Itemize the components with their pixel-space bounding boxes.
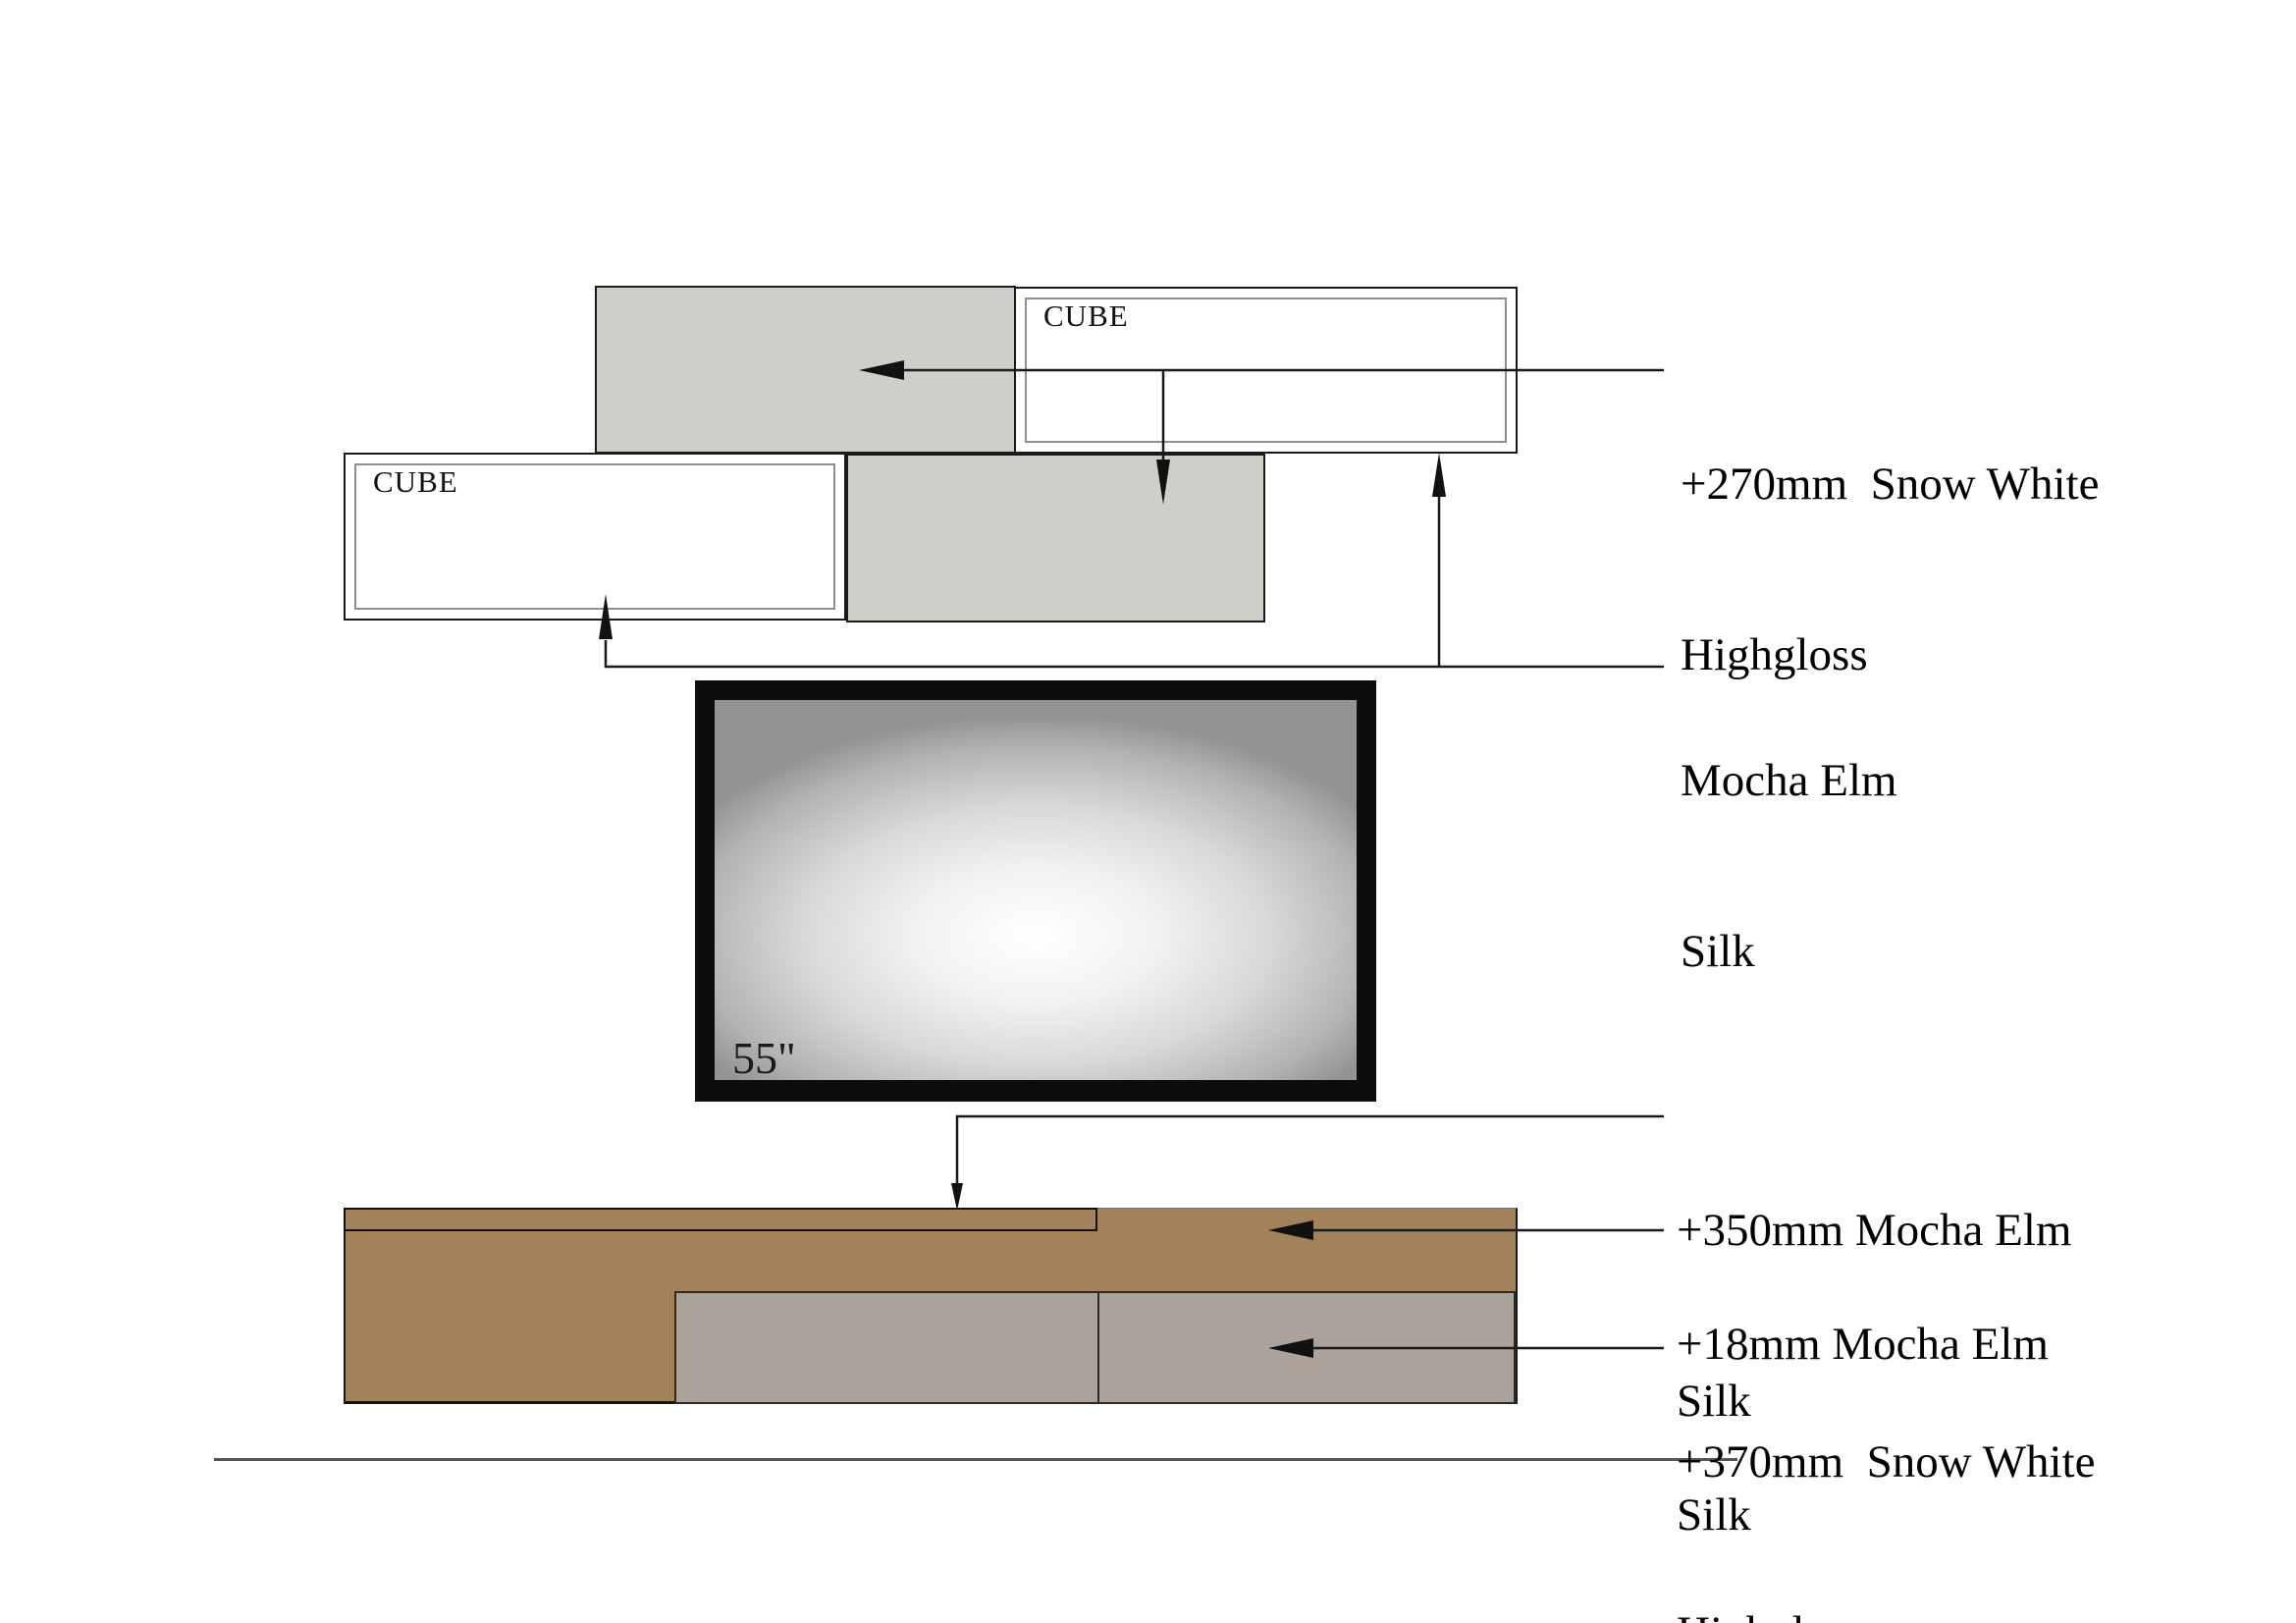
- annotation-mocha-elm: Mocha Elm Silk: [1681, 638, 1897, 1094]
- cube-left-label: CUBE: [373, 464, 458, 500]
- cabinet-top-panel: [344, 1208, 1097, 1231]
- cabinet-door-divider: [1097, 1293, 1099, 1402]
- floor-line: [214, 1458, 1737, 1461]
- cube-box-left: CUBE: [344, 453, 846, 621]
- wall-panel-gray-middle: [846, 454, 1265, 622]
- annotation-mocha-elm-line2: Silk: [1681, 923, 1897, 980]
- arrowhead-mocha-up-right-cube: [1432, 453, 1446, 497]
- elevation-drawing: CUBE CUBE 55": [0, 0, 2296, 1623]
- annotation-370mm: +370mm Snow White Highgloss: [1677, 1320, 2095, 1623]
- tv-size-label: 55": [732, 1032, 796, 1084]
- tv-55-inch: 55": [695, 680, 1376, 1102]
- leader-350mm-line: [957, 1116, 1664, 1186]
- arrowhead-350mm-down: [951, 1183, 963, 1211]
- cube-right-label: CUBE: [1043, 298, 1129, 334]
- annotation-mocha-elm-line1: Mocha Elm: [1681, 752, 1897, 809]
- annotation-370mm-line1: +370mm Snow White: [1677, 1434, 2095, 1490]
- annotation-370mm-line2: Highgloss: [1677, 1604, 2095, 1623]
- cabinet-doors-snow-white: [674, 1291, 1516, 1404]
- leader-mocha-elm-line: [606, 640, 1664, 667]
- annotation-270mm-line1: +270mm Snow White: [1681, 456, 2099, 513]
- tv-screen: [715, 700, 1357, 1080]
- wall-panel-gray-top: [595, 286, 1016, 454]
- cube-box-right: CUBE: [1014, 287, 1518, 454]
